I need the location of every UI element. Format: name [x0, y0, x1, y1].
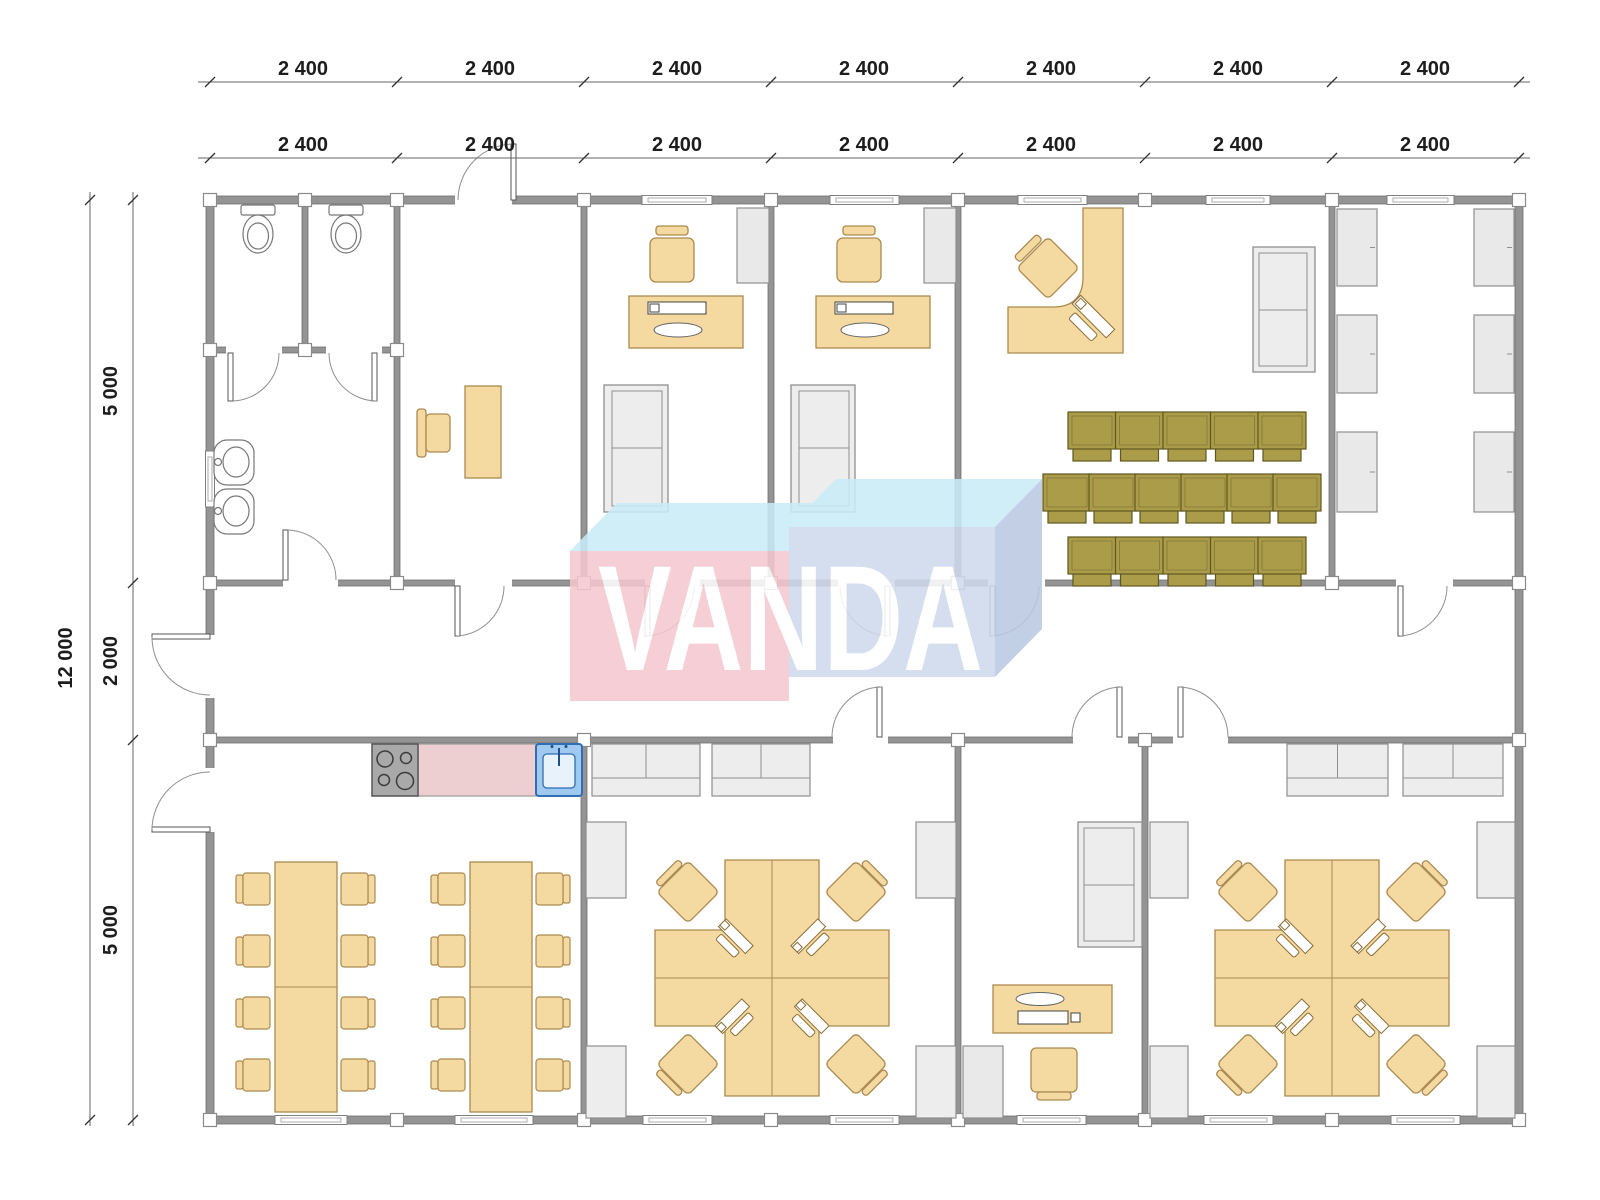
dining-chair — [438, 997, 465, 1029]
door-openspace2-corridor — [1178, 687, 1228, 737]
conference-chair — [1227, 474, 1275, 511]
dining-chair-back — [236, 1061, 243, 1089]
conference-chair — [1258, 412, 1306, 449]
door-smalloffice-corridor — [1072, 687, 1122, 737]
dining-chair — [243, 997, 270, 1029]
dining-chair-back — [431, 875, 438, 903]
toilet-wc-left — [241, 205, 275, 253]
small-office — [963, 822, 1142, 1118]
keyboard-icon — [1018, 1011, 1068, 1024]
column — [952, 194, 965, 207]
office1 — [604, 208, 769, 512]
column — [391, 1114, 404, 1127]
dimension-label: 2 400 — [652, 134, 702, 156]
conference-chair-back — [1094, 510, 1132, 523]
dimension-label: 5 000 — [100, 905, 122, 955]
cabinet — [586, 1046, 626, 1118]
window — [275, 1116, 347, 1125]
dining-chair — [341, 997, 368, 1029]
conference-chair-back — [1121, 573, 1159, 586]
workstation-chair — [1211, 1033, 1279, 1101]
wall-interior — [394, 200, 400, 583]
conference-chair — [1181, 474, 1229, 511]
cabinet — [1150, 822, 1188, 898]
dimension-label: 2 400 — [278, 58, 328, 80]
workstation-chair — [825, 855, 893, 923]
toilet-wc-right — [329, 205, 363, 253]
conference-chair — [1211, 412, 1259, 449]
dimension-label: 2 400 — [839, 134, 889, 156]
office-desk — [993, 985, 1112, 1033]
desk-chair — [1010, 230, 1079, 299]
column — [299, 194, 312, 207]
floor-plan-page: VANDA 2 4002 4002 4002 4002 4002 4002 40… — [0, 0, 1600, 1200]
dimension-label: 2 400 — [1026, 58, 1076, 80]
dining-chair-back — [236, 999, 243, 1027]
column — [204, 194, 217, 207]
dimension-label: 2 000 — [100, 636, 122, 686]
door-exterior-left-canteen — [152, 772, 210, 832]
dimension-label: 2 400 — [465, 134, 515, 156]
dining-chair — [341, 873, 368, 905]
dimension-label: 2 400 — [652, 58, 702, 80]
door-toilet-stall-left — [228, 353, 279, 401]
dimension-label: 2 400 — [1400, 134, 1450, 156]
conference-chair-back — [1263, 448, 1301, 461]
workstation-chair — [1385, 1033, 1453, 1101]
window — [1391, 1116, 1460, 1125]
dining-chair — [438, 1059, 465, 1091]
wall-interior — [1142, 740, 1148, 1120]
window — [830, 1116, 899, 1125]
stove-icon — [372, 744, 418, 796]
dining-chair — [536, 873, 563, 905]
dining-chair — [536, 997, 563, 1029]
conference-chair-back — [1216, 573, 1254, 586]
column — [1513, 734, 1526, 747]
dining-chair — [536, 1059, 563, 1091]
door-toilet-anteroom — [283, 530, 336, 580]
dining-chair-back — [563, 999, 570, 1027]
conference-chair — [1043, 474, 1091, 511]
cabinet — [916, 822, 956, 898]
window — [1018, 196, 1087, 205]
conference-chair-back — [1140, 510, 1178, 523]
column — [1513, 577, 1526, 590]
keyboard-icon — [654, 323, 702, 337]
conference-chair-back — [1073, 448, 1111, 461]
dining-chair — [438, 935, 465, 967]
openspace2 — [1150, 744, 1515, 1118]
dining-chair-back — [431, 1061, 438, 1089]
conference-chair — [1068, 412, 1116, 449]
reception-chair-back — [417, 409, 426, 457]
conference-room — [1008, 208, 1321, 586]
conference-chair — [1068, 537, 1116, 574]
column — [765, 1114, 778, 1127]
dining-chair-back — [368, 937, 375, 965]
column — [391, 194, 404, 207]
floor-plan-drawing: VANDA 2 4002 4002 4002 4002 4002 4002 40… — [0, 0, 1600, 1200]
door-exterior-left-corridor — [152, 634, 210, 695]
dimension-label: 2 400 — [1213, 134, 1263, 156]
reception-chair — [426, 414, 450, 452]
window — [830, 196, 899, 205]
column — [952, 734, 965, 747]
sink-icon — [536, 744, 582, 796]
cabinet — [916, 1046, 956, 1118]
dining-chair — [438, 873, 465, 905]
wardrobe-lockers — [1337, 209, 1514, 512]
office-chair-headrest — [656, 226, 688, 235]
conference-chair-back — [1168, 573, 1206, 586]
dimension-label: 12 000 — [55, 627, 77, 688]
cabinet — [963, 1046, 1003, 1118]
dining-chair — [243, 873, 270, 905]
door-reception-corridor — [455, 586, 504, 636]
wall-interior — [581, 200, 587, 583]
dining-chair-back — [431, 937, 438, 965]
dining-chair — [341, 1059, 368, 1091]
conference-chair-back — [1232, 510, 1270, 523]
wall-exterior-right — [1515, 196, 1523, 1124]
conference-chair-back — [1168, 448, 1206, 461]
office-chair — [650, 238, 694, 282]
dining-chair — [536, 935, 563, 967]
washbasin — [214, 440, 254, 485]
column — [204, 734, 217, 747]
dining-chair-back — [563, 875, 570, 903]
mouse-icon — [1071, 1013, 1080, 1022]
office2 — [791, 208, 956, 512]
keyboard-icon — [841, 323, 889, 337]
door-toilet-stall-right — [329, 353, 377, 401]
column — [204, 344, 217, 357]
cabinet — [737, 208, 769, 283]
office-chair-headrest — [843, 226, 875, 235]
conference-chair-back — [1073, 573, 1111, 586]
dimension-label: 2 400 — [1400, 58, 1450, 80]
conference-chair — [1135, 474, 1183, 511]
column — [204, 1114, 217, 1127]
vanda-watermark: VANDA — [570, 479, 1042, 702]
wall-interior — [1329, 200, 1335, 583]
door-wardrobe-corridor — [1398, 586, 1447, 636]
dimension-label: 2 400 — [1213, 58, 1263, 80]
window — [455, 1116, 533, 1125]
washbasin — [214, 489, 254, 534]
dining-chair-back — [431, 999, 438, 1027]
column — [299, 344, 312, 357]
conference-chair — [1116, 412, 1164, 449]
dimension-label: 2 400 — [839, 58, 889, 80]
cabinet — [1477, 822, 1515, 898]
column — [765, 194, 778, 207]
openspace1 — [586, 744, 956, 1118]
column — [391, 344, 404, 357]
conference-chair-back — [1216, 448, 1254, 461]
dining-chair-back — [563, 1061, 570, 1089]
kitchen-counter — [418, 744, 536, 796]
dining-chair — [243, 1059, 270, 1091]
column — [204, 577, 217, 590]
column — [1139, 734, 1152, 747]
column — [1139, 194, 1152, 207]
workstation-chair — [1211, 855, 1279, 923]
conference-chair-rows — [1043, 412, 1321, 586]
dining-chair-back — [563, 937, 570, 965]
dimension-label: 2 400 — [278, 134, 328, 156]
dining-chair-back — [368, 1061, 375, 1089]
conference-chair-back — [1186, 510, 1224, 523]
wall-toilet-partition — [302, 200, 308, 350]
window — [643, 1116, 712, 1125]
workstation-chair — [651, 855, 719, 923]
column — [1326, 577, 1339, 590]
conference-chair — [1116, 537, 1164, 574]
conference-chair-back — [1048, 510, 1086, 523]
cabinet — [1150, 1046, 1188, 1118]
workstation-chair — [651, 1033, 719, 1101]
office-chair — [1031, 1048, 1077, 1092]
column — [1326, 194, 1339, 207]
conference-chair-back — [1121, 448, 1159, 461]
window — [642, 196, 712, 205]
column — [391, 577, 404, 590]
dimension-label: 5 000 — [100, 366, 122, 416]
window — [1204, 1116, 1273, 1125]
dimension-label: 2 400 — [1026, 134, 1076, 156]
conference-chair-back — [1278, 510, 1316, 523]
conference-chair — [1211, 537, 1259, 574]
watermark-text: VANDA — [598, 534, 983, 702]
column — [578, 194, 591, 207]
workstation-chair — [1385, 855, 1453, 923]
conference-chair — [1258, 537, 1306, 574]
conference-chair — [1273, 474, 1321, 511]
conference-chair — [1163, 412, 1211, 449]
workstation-chair — [825, 1033, 893, 1101]
dining-chair — [243, 935, 270, 967]
column — [1326, 1114, 1339, 1127]
column — [1513, 194, 1526, 207]
dining-chair-back — [236, 937, 243, 965]
window — [1387, 196, 1454, 205]
window — [206, 451, 215, 507]
conference-chair — [1163, 537, 1211, 574]
canteen — [236, 744, 582, 1112]
office-chair — [837, 238, 881, 282]
window — [1017, 1116, 1086, 1125]
cabinet — [924, 208, 956, 283]
conference-chair — [1089, 474, 1137, 511]
reception-desk — [417, 386, 501, 478]
dining-chair-back — [236, 875, 243, 903]
cabinet — [586, 822, 626, 898]
dimension-label: 2 400 — [465, 58, 515, 80]
dining-chair-back — [368, 875, 375, 903]
dining-chair — [341, 935, 368, 967]
dining-chair-back — [368, 999, 375, 1027]
window — [1206, 196, 1270, 205]
cabinet — [1477, 1046, 1515, 1118]
conference-chair-back — [1263, 573, 1301, 586]
